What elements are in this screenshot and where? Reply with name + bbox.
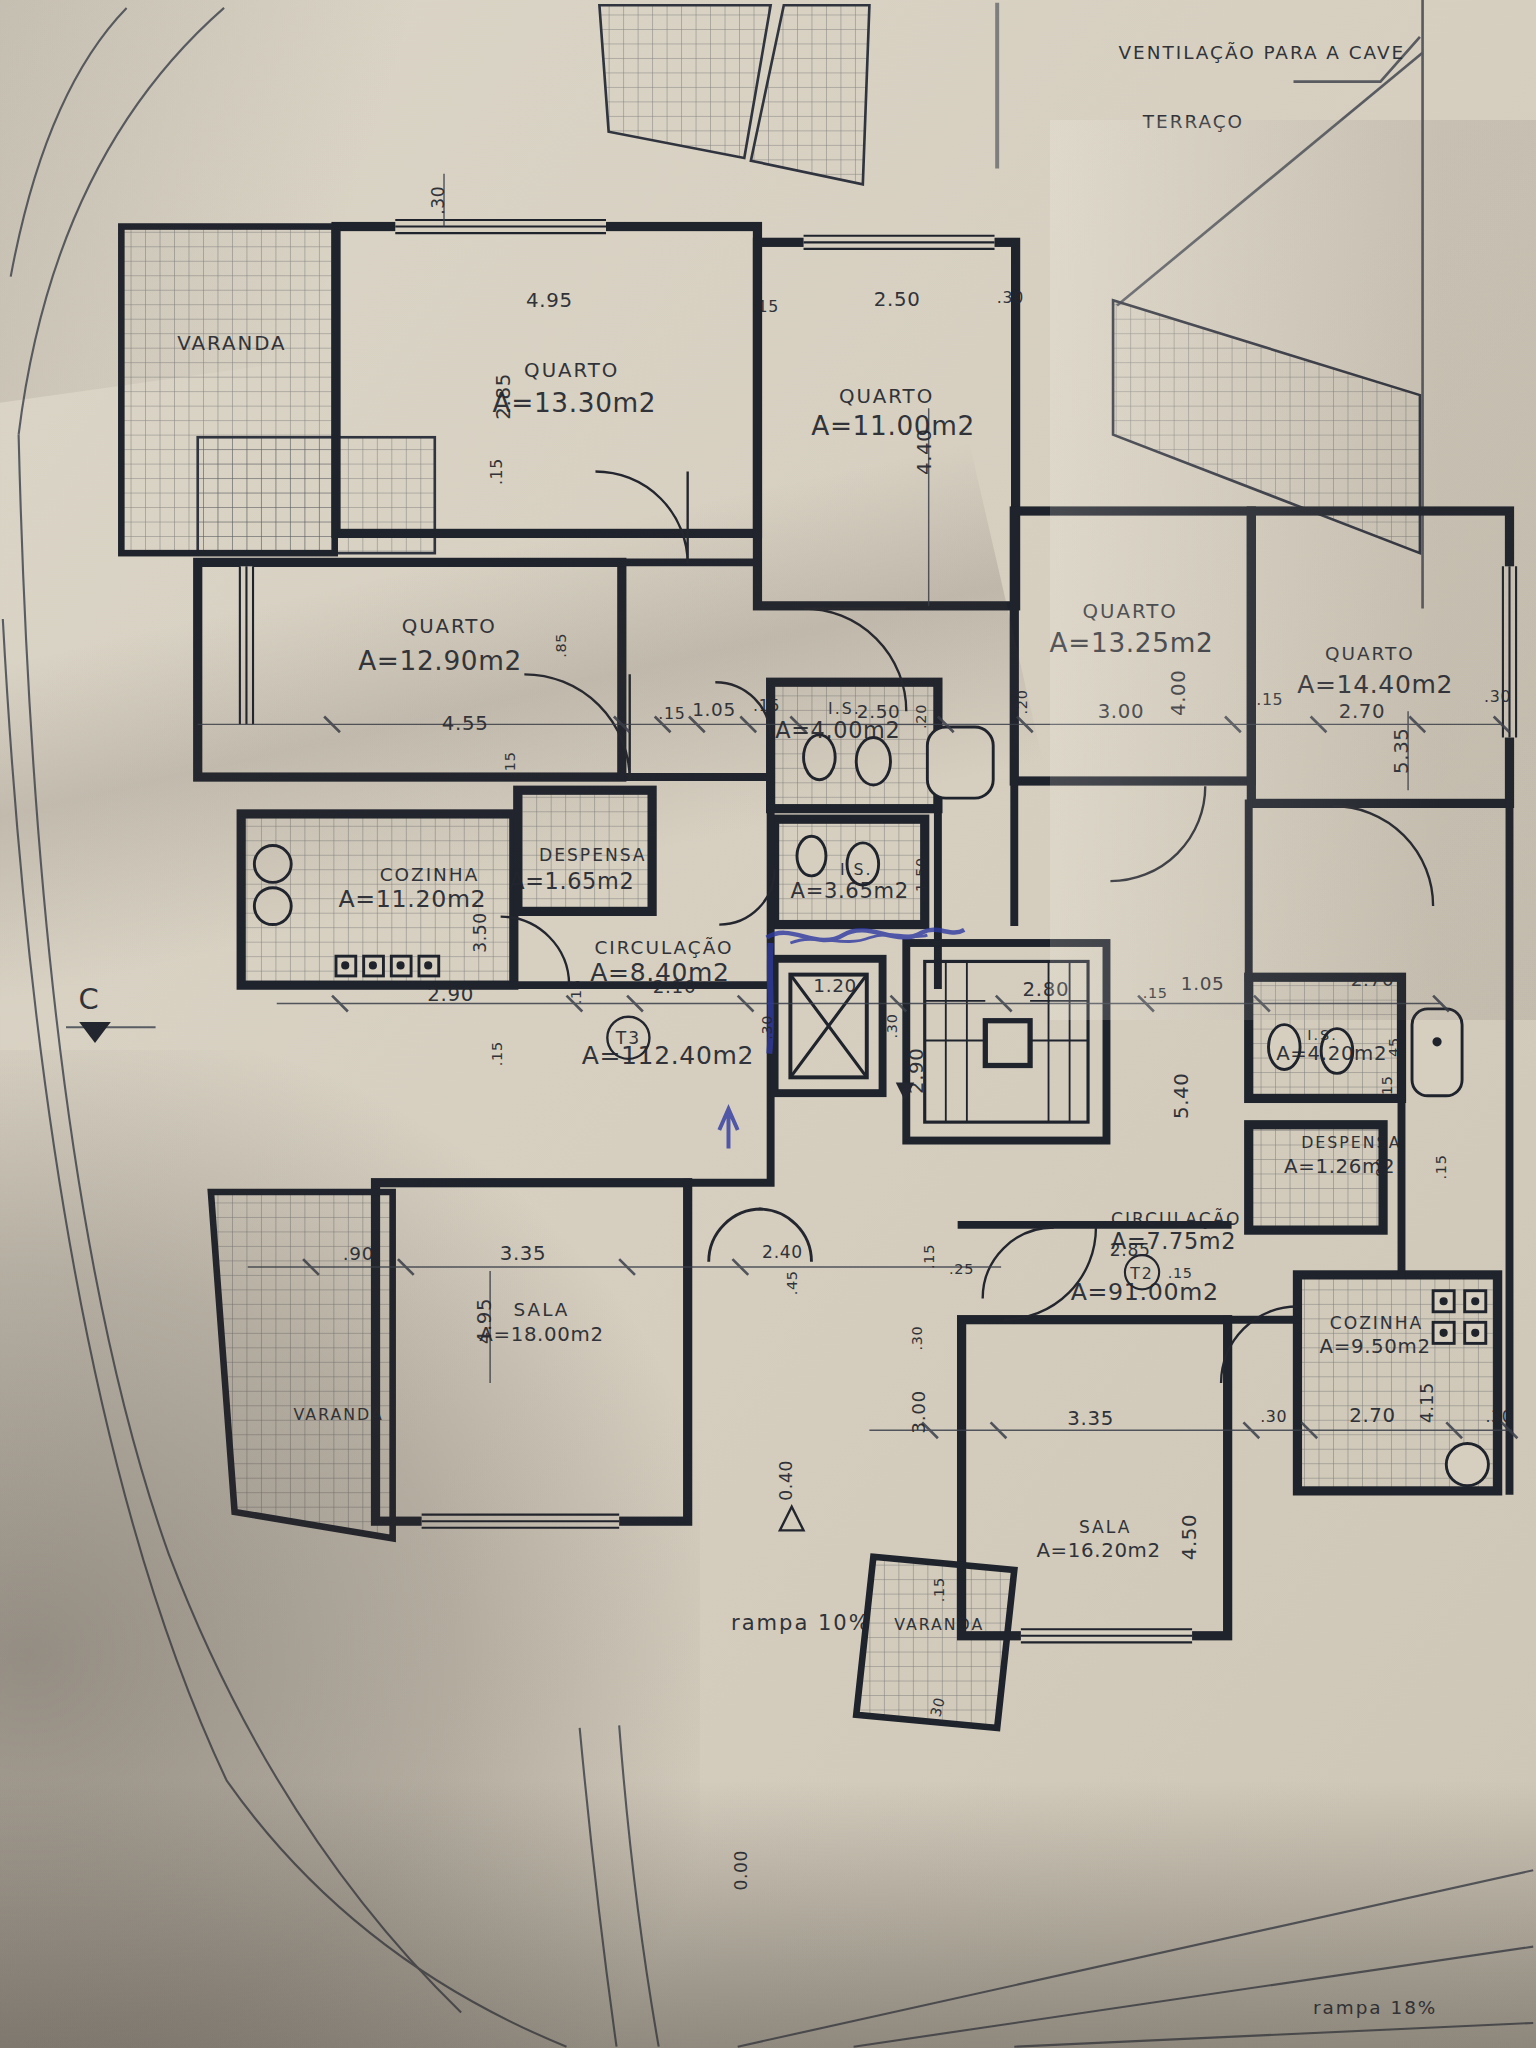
label-dim-300-a: 3.00 <box>1098 700 1145 723</box>
label-quarto-1-name: QUARTO <box>524 359 619 382</box>
label-dim-400-v: 4.00 <box>1168 669 1191 716</box>
label-quarto-5-name: QUARTO <box>1325 643 1415 664</box>
label-circulacao-1-name: CIRCULAÇÃO <box>595 937 734 958</box>
label-quarto-5-area: A=14.40m2 <box>1297 670 1453 699</box>
label-dim-30-b: .30 <box>997 288 1024 307</box>
label-is-2-name: I.S. <box>840 860 873 879</box>
label-dim-15-l: .15 <box>921 1244 937 1269</box>
label-dim-250-b: 2.50 <box>857 701 901 722</box>
label-sala-2-area: A=16.20m2 <box>1036 1539 1160 1562</box>
label-dim-30-g: .30 <box>1260 1407 1287 1426</box>
label-quarto-2-name: QUARTO <box>839 385 934 408</box>
label-dim-250-a: 2.50 <box>874 288 921 311</box>
label-varanda-left: VARANDA <box>294 1405 384 1424</box>
label-dim-15-b: .15 <box>487 458 506 485</box>
label-quarto-1-area: A=13.30m2 <box>493 388 657 418</box>
label-dim-240: 2.40 <box>762 1242 803 1262</box>
label-dim-45-b: .45 <box>784 1270 800 1295</box>
label-quarto-4-area: A=13.25m2 <box>1050 628 1214 658</box>
label-dim-105-a: 1.05 <box>692 699 736 720</box>
label-despensa-1-name: DESPENSA <box>539 845 646 865</box>
toilet-is1 <box>856 738 890 785</box>
label-sala-1-area: A=18.00m2 <box>479 1323 603 1346</box>
label-dim-270-a: 2.70 <box>1339 700 1386 723</box>
kitchen-sink-2 <box>1446 1443 1488 1485</box>
label-dim-15-k: .15 <box>489 1041 505 1066</box>
label-dim-120: 1.20 <box>813 975 857 996</box>
floor-plan-svg: VENTILAÇÃO PARA A CAVETERRAÇOVARANDAQUAR… <box>0 0 1536 2048</box>
label-dim-20-b: .20 <box>1014 689 1030 714</box>
label-t3-area: A=112.40m2 <box>582 1041 754 1070</box>
bathtub-is1 <box>927 727 993 798</box>
label-dim-30-f: .30 <box>909 1326 925 1351</box>
label-level-0-00: 0.00 <box>731 1850 751 1891</box>
label-quarto-4-name: QUARTO <box>1083 600 1178 623</box>
label-dim-30-e: .30 <box>884 1013 900 1038</box>
label-sala-1-name: SALA <box>514 1299 570 1320</box>
bathtub-is3 <box>1412 1009 1462 1096</box>
label-dim-25-a: .25 <box>949 1261 974 1277</box>
label-dim-30-d: .30 <box>759 1015 775 1040</box>
label-t2-area: A=91.00m2 <box>1071 1278 1219 1306</box>
label-varanda-bottom: VARANDA <box>894 1615 984 1634</box>
label-dim-105-b: 1.05 <box>1181 973 1225 994</box>
label-dim-495-v: 4.95 <box>473 1298 496 1345</box>
label-dim-210: 2.10 <box>653 976 697 997</box>
label-dim-540-v: 5.40 <box>1170 1072 1193 1119</box>
label-dim-15-n: .15 <box>931 1577 947 1602</box>
label-dim-335-b: 3.35 <box>1067 1407 1114 1430</box>
label-dim-15-j: .15 <box>1433 1154 1449 1179</box>
label-dim-290-a: 2.90 <box>427 983 474 1006</box>
terrace-tiles-top-1 <box>599 5 770 158</box>
label-is-3-area: A=4.20m2 <box>1276 1042 1387 1065</box>
label-dim-30-c: .30 <box>1484 687 1511 706</box>
floor-plan-photo: VENTILAÇÃO PARA A CAVETERRAÇOVARANDAQUAR… <box>0 0 1536 2048</box>
kitchen-sink-1a <box>254 846 291 883</box>
label-cozinha-1-name: COZINHA <box>380 864 479 885</box>
label-dim-15-h: .15 <box>1143 985 1168 1001</box>
label-dim-85-v: .85 <box>553 633 569 658</box>
label-dim-30-a: .30 <box>428 186 448 215</box>
label-dim-300-v: 3.00 <box>908 1390 929 1434</box>
label-dim-440-v: 4.40 <box>913 428 936 475</box>
label-rampa-18: rampa 18% <box>1313 1997 1437 2018</box>
sink-is2 <box>797 836 826 876</box>
label-despensa-1-area: A=1.65m2 <box>509 868 634 894</box>
label-cozinha-1-area: A=11.20m2 <box>338 885 486 913</box>
label-dim-15-i: .15 <box>1379 1075 1395 1100</box>
label-dim-290-v: 2.90 <box>905 1047 928 1094</box>
label-level-0-40: 0.40 <box>776 1460 796 1501</box>
label-dim-15-g: .15 <box>568 979 584 1004</box>
label-dim-415-v: 4.15 <box>1417 1382 1437 1423</box>
label-dim-535-v: 5.35 <box>1390 727 1413 774</box>
label-dim-15-e: .15 <box>753 696 780 715</box>
label-cozinha-2-name: COZINHA <box>1330 1313 1423 1333</box>
label-dim-90-v: .90 <box>1373 1157 1389 1182</box>
label-cozinha-2-area: A=9.50m2 <box>1320 1335 1431 1358</box>
label-dim-495-a: 4.95 <box>526 289 573 312</box>
label-is-2-area: A=3.65m2 <box>791 878 909 903</box>
label-dim-455: 4.55 <box>442 712 489 735</box>
label-quarto-2-area: A=11.00m2 <box>811 411 975 441</box>
label-dim-150-v: 1.50 <box>913 857 929 892</box>
label-varanda-top-left: VARANDA <box>177 332 286 355</box>
label-dim-30-h: .30 <box>1485 1407 1512 1426</box>
label-dim-15-m: .15 <box>1168 1265 1193 1281</box>
label-dim-285-b: 2.85 <box>1110 1240 1151 1260</box>
label-quarto-3-area: A=12.90m2 <box>358 646 522 676</box>
label-dim-335-a: 3.35 <box>500 1242 547 1265</box>
label-despensa-2-name: DESPENSA <box>1301 1133 1401 1152</box>
label-dim-15-d: .15 <box>658 704 685 723</box>
label-dim-450-v: 4.50 <box>1178 1514 1201 1561</box>
label-dim-45-a: .45 <box>1386 1037 1402 1062</box>
label-circulacao-2-name: CIRCULAÇÃO <box>1111 1208 1241 1229</box>
label-terraco: TERRAÇO <box>1142 111 1244 132</box>
label-dim-20-a: .20 <box>913 704 929 729</box>
label-quarto-3-name: QUARTO <box>402 615 497 638</box>
label-dim-280: 2.80 <box>1023 978 1070 1001</box>
label-section-c: C <box>79 982 101 1016</box>
label-sala-2-name: SALA <box>1079 1517 1131 1537</box>
label-dim-270-b: 2.70 <box>1351 969 1395 990</box>
label-dim-90-a: .90 <box>343 1243 374 1264</box>
label-dim-350-v: 3.50 <box>470 912 490 953</box>
kitchen-sink-1b <box>254 888 291 925</box>
label-dim-15-f: .15 <box>1256 690 1283 709</box>
label-dim-15-a: .15 <box>752 297 779 316</box>
label-dim-15-c: .15 <box>502 751 518 776</box>
label-dim-270-c: 2.70 <box>1349 1404 1396 1427</box>
label-rampa-10: rampa 10% <box>731 1610 871 1635</box>
label-ventilacao: VENTILAÇÃO PARA A CAVE <box>1119 42 1406 63</box>
label-dim-285-v: 2.85 <box>492 373 515 420</box>
label-is-3-name: I.S. <box>1307 1027 1338 1043</box>
